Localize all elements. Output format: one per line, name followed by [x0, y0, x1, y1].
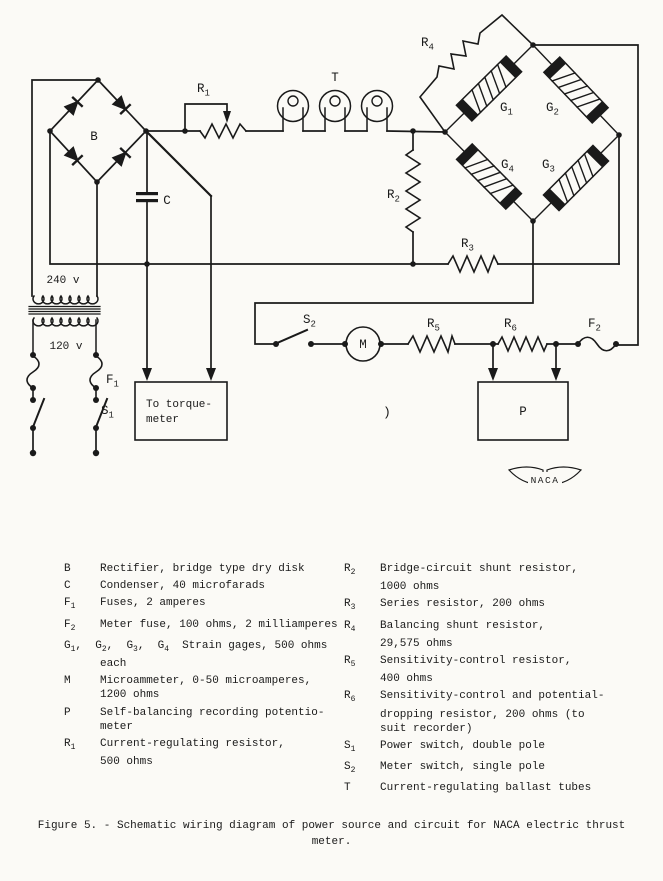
label-r6: R6 [504, 317, 517, 334]
label-240v: 240 v [46, 275, 79, 287]
legend-description-line: Meter switch, single pole [380, 760, 545, 778]
legend-symbol: R6 [344, 689, 380, 707]
label-p: P [519, 405, 527, 419]
legend-description-line: 1000 ohms [380, 580, 439, 594]
legend-description-line: 400 ohms [380, 672, 433, 686]
legend-entry: BRectifier, bridge type dry disk [64, 562, 344, 576]
recorder-taps [488, 344, 561, 381]
ballast-tubes [246, 91, 445, 133]
naca-logo-text: NACA [531, 475, 560, 486]
label-r5: R5 [427, 317, 440, 334]
legend-description-line: Microammeter, 0-50 microamperes, [100, 674, 311, 688]
legend-description-line: suit recorder) [380, 722, 472, 736]
resistor-r1 [146, 104, 246, 138]
legend-description-line: Sensitivity-control and potential- [380, 689, 604, 707]
label-g3: G3 [542, 158, 555, 175]
legend-symbol: R5 [344, 654, 380, 672]
legend-symbol [64, 688, 100, 702]
figure-caption-line2: meter. [0, 834, 663, 850]
legend-symbol: R4 [344, 619, 380, 637]
legend-entry: CCondenser, 40 microfarads [64, 579, 344, 593]
figure-caption: Figure 5. - Schematic wiring diagram of … [0, 818, 663, 850]
label-s1: S1 [101, 404, 114, 421]
label-g2: G2 [546, 101, 559, 118]
legend-symbol [344, 580, 380, 594]
legend-entry: R1Current-regulating resistor,500 ohms [64, 737, 344, 769]
legend-entry: R2Bridge-circuit shunt resistor,1000 ohm… [344, 562, 660, 594]
legend-symbol: S1 [344, 739, 380, 757]
wiring-diagram: B C T M P 240 v 120 v R1 R2 R3 R4 R5 R6 … [0, 0, 663, 558]
legend-entry: PSelf-balancing recording potentio-meter [64, 706, 344, 734]
legend-entry: R6Sensitivity-control and potential-drop… [344, 689, 660, 736]
legend-description-line: Meter fuse, 100 ohms, 2 milliamperes [100, 618, 338, 636]
legend-description-line: Series resistor, 200 ohms [380, 597, 545, 615]
legend-description-line: Rectifier, bridge type dry disk [100, 562, 305, 576]
legend-entry: TCurrent-regulating ballast tubes [344, 781, 660, 795]
legend-description-line: meter [100, 720, 133, 734]
legend-symbol [64, 720, 100, 734]
legend-entry: R4Balancing shunt resistor,29,575 ohms [344, 619, 660, 651]
legend-description-line: 29,575 ohms [380, 637, 453, 651]
label-b: B [90, 130, 98, 144]
legend-symbol [344, 708, 380, 722]
legend-description-line: 1200 ohms [100, 688, 159, 702]
legend-description-line: Current-regulating ballast tubes [380, 781, 591, 795]
label-m: M [359, 338, 367, 352]
resistor-r5 [408, 336, 455, 352]
label-f2: F2 [588, 317, 601, 334]
legend-entry: S2Meter switch, single pole [344, 760, 660, 778]
legend-symbol: T [344, 781, 380, 795]
strain-gage-g4 [457, 144, 522, 209]
label-r4: R4 [421, 36, 434, 53]
strain-gage-bridge [445, 45, 619, 221]
label-g1: G1 [500, 101, 513, 118]
legend-entry: F1Fuses, 2 amperes [64, 596, 344, 614]
torquemeter-box [135, 382, 227, 440]
label-g4: G4 [501, 158, 514, 175]
rectifier-bridge [50, 80, 146, 182]
legend-description-line: Strain gages, 500 ohms [182, 639, 327, 657]
legend-description-line: each [100, 657, 126, 671]
legend-entry: F2Meter fuse, 100 ohms, 2 milliamperes [64, 618, 344, 636]
legend-symbol: R1 [64, 737, 100, 755]
legend-symbol: G1, G2, G3, G4 [64, 639, 182, 657]
legend-symbol [344, 637, 380, 651]
legend-symbol: R2 [344, 562, 380, 580]
legend-entry: MMicroammeter, 0-50 microamperes,1200 oh… [64, 674, 344, 702]
legend-entry: G1, G2, G3, G4Strain gages, 500 ohmseach [64, 639, 344, 671]
figure-caption-line1: Figure 5. - Schematic wiring diagram of … [0, 818, 663, 834]
torquemeter-label-line1: To torque- [146, 399, 212, 411]
resistor-r3 [448, 256, 498, 272]
microammeter [346, 327, 408, 361]
legend-description-line: Current-regulating resistor, [100, 737, 285, 755]
label-c: C [163, 194, 171, 208]
scanned-figure-page: { "page": {"ink": "#1a1a1a", "paper": "#… [0, 0, 663, 881]
legend-description-line: Power switch, double pole [380, 739, 545, 757]
torquemeter-feeds [142, 131, 216, 381]
legend-symbol: P [64, 706, 100, 720]
legend-description-line: Balancing shunt resistor, [380, 619, 545, 637]
legend-right-column: R2Bridge-circuit shunt resistor,1000 ohm… [344, 562, 660, 799]
legend-description-line: Self-balancing recording potentio- [100, 706, 324, 720]
resistor-r2 [406, 131, 420, 264]
legend-left-column: BRectifier, bridge type dry diskCCondens… [64, 562, 344, 772]
resistor-r6 [498, 337, 547, 351]
legend-entry: R3Series resistor, 200 ohms [344, 597, 660, 615]
stray-mark: ) [383, 405, 391, 420]
legend-symbol [344, 672, 380, 686]
legend-symbol: B [64, 562, 100, 576]
legend-symbol: S2 [344, 760, 380, 778]
label-r3: R3 [461, 237, 474, 254]
legend-symbol: R3 [344, 597, 380, 615]
label-r2: R2 [387, 188, 400, 205]
legend-description-line: Bridge-circuit shunt resistor, [380, 562, 578, 580]
fuses-f1 [27, 356, 102, 399]
legend-symbol [64, 657, 100, 671]
legend-symbol: F2 [64, 618, 100, 636]
filter-capacitor [136, 131, 158, 264]
label-f1: F1 [106, 373, 119, 390]
legend-description-line: Fuses, 2 amperes [100, 596, 206, 614]
label-120v: 120 v [49, 341, 82, 353]
strain-gage-g3 [543, 145, 608, 210]
legend-entry: R5Sensitivity-control resistor,400 ohms [344, 654, 660, 686]
legend-description-line: 500 ohms [100, 755, 153, 769]
label-s2: S2 [303, 313, 316, 330]
legend-symbol: M [64, 674, 100, 688]
legend-description-line: Sensitivity-control resistor, [380, 654, 571, 672]
legend-symbol: F1 [64, 596, 100, 614]
label-t: T [331, 71, 339, 85]
legend-entry: S1Power switch, double pole [344, 739, 660, 757]
label-r1: R1 [197, 82, 210, 99]
legend-description-line: dropping resistor, 200 ohms (to [380, 708, 585, 722]
legend-description-line: Condenser, 40 microfarads [100, 579, 265, 593]
fuse-f2 [578, 337, 616, 351]
legend-symbol: C [64, 579, 100, 593]
legend-symbol [64, 755, 100, 769]
legend-symbol [344, 722, 380, 736]
torquemeter-label-line2: meter [146, 414, 179, 426]
